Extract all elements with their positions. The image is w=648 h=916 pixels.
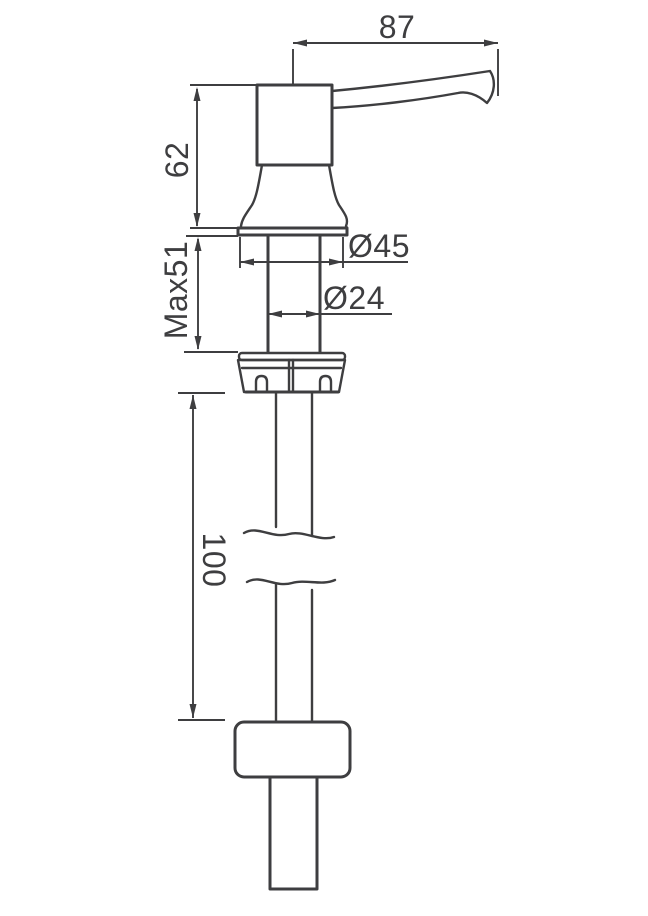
nut-notch-right [320,376,331,392]
arrowhead-left [240,259,254,266]
threaded-shaft [268,236,320,352]
valve-block-outline [235,722,350,777]
pump-head [257,85,332,165]
arrowhead-down [195,336,202,350]
dimension-label-d45: Ø45 [348,228,410,264]
flare-right-edge [329,165,347,228]
escutcheon-flare [241,165,347,228]
arrowhead-left [293,40,307,47]
arrowhead-down [194,213,201,227]
arrowhead-up [195,237,202,251]
dimension-body-diameter: Ø24 [268,280,392,318]
flare-left-edge [241,165,262,228]
arrowhead-right [329,259,343,266]
dimension-label-87: 87 [379,9,416,45]
intake-tube [270,777,317,889]
spout-outline [332,71,494,108]
break-line-top [244,530,334,538]
arrowhead-up [194,87,201,101]
soap-dispenser-dimension-drawing: 87 62 Max51 Ø45 Ø24 [0,0,648,916]
arrowhead-right [484,40,498,47]
pump-head-body [257,85,332,165]
arrowhead-down [190,704,197,718]
dimension-label-100: 100 [196,533,232,588]
arrowhead-up [190,395,197,409]
break-line-bottom [247,579,335,584]
flange-plate [238,228,347,235]
arrowhead-left [268,311,282,318]
suction-tube [244,393,335,722]
dimension-label-62: 62 [159,142,195,179]
dimension-tube-length: 100 [178,393,232,720]
dimension-label-d24: Ø24 [323,280,385,316]
dimension-label-max51: Max51 [158,241,194,340]
spout [332,71,494,108]
flange-outline [238,228,347,235]
dimension-max-mount-thickness: Max51 [158,236,238,352]
arrowhead-right [306,311,320,318]
technical-drawing-canvas: 87 62 Max51 Ø45 Ø24 [0,0,648,916]
nut-notch-left [256,376,267,392]
check-valve-block [235,722,350,889]
mounting-nut [238,353,345,392]
dimension-head-height: 62 [159,85,257,228]
